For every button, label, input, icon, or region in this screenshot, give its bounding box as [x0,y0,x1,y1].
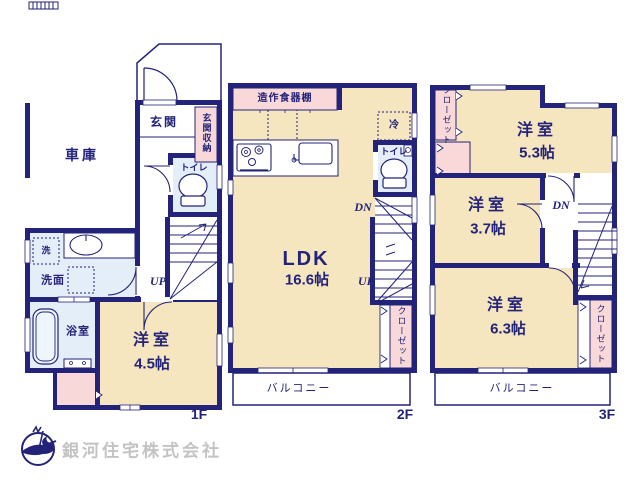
window [25,240,30,263]
garage-label: 車庫 [65,148,99,162]
toilet-door-arc [144,166,170,192]
window [470,85,506,90]
stairs-up-label-1f: UP [150,275,166,287]
bathtub-icon [33,309,58,364]
cupboard-label: 造作食器棚 [258,94,313,104]
toilet-label-1f: トイレ [180,164,207,173]
window [565,103,599,108]
floor-label-3f: 3F [599,407,615,421]
company-name: 銀河住宅株式会社 [62,437,222,462]
balcony-label-3f: バルコニー [490,384,555,395]
ldk-label: LDK [282,249,329,269]
refrigerator-label: 冷 [389,121,399,131]
floor2-plan [228,83,417,405]
window [228,180,233,195]
window [25,318,30,352]
entrance-porch [137,44,221,101]
bedroom2-label-3f: 洋室 [468,198,508,214]
garage-gate-icon [29,2,58,9]
floorplan-canvas [0,0,640,480]
closet-label-2f: クローゼット [397,306,406,366]
window [412,113,417,138]
bedroom-label-1f: 洋室 [133,333,173,349]
entrance-storage-label: 玄関収納 [202,113,211,153]
shower-counter-icon [64,359,91,368]
window [412,197,417,223]
window [430,285,435,315]
floor-label-1f: 1F [191,407,207,421]
window [217,165,222,189]
bedroom3-size-3f: 6.3帖 [490,322,526,337]
window [228,327,233,343]
window [430,195,435,225]
closet-bottom-label-3f: クローゼット [596,304,605,364]
balcony-label-2f: バルコニー [267,384,332,395]
window [612,228,617,254]
window [217,334,222,366]
stove-icon [237,144,271,171]
company-logo-bird-icon [21,427,56,465]
toilet-label-2f: トイレ [380,148,407,157]
ldk-size: 16.6帖 [285,273,329,288]
entrance-label: 玄関 [150,116,178,128]
stairs-down-label-3f: DN [552,199,569,211]
floor1-plan [25,2,222,410]
stairs-1f [170,217,217,300]
laundry-label: 洗 [41,247,50,256]
bedroom1-label-3f: 洋室 [517,123,557,139]
bedroom-size-1f: 4.5帖 [134,357,170,372]
window [228,263,233,283]
floorplan-page: 車庫 玄関 玄関収納 トイレ 洗 洗面 浴室 UP 洋室 4.5帖 1F 造作食… [0,0,640,480]
bedroom1-size-3f: 5.3帖 [519,146,555,161]
stairs-up-label-2f: UP [358,275,374,287]
toilet-icon-1f [179,174,207,206]
bedroom2-size-3f: 3.7帖 [470,222,506,237]
bedroom3-label-3f: 洋室 [487,298,527,314]
bathroom-label: 浴室 [66,327,90,338]
closet-top-label-3f: クローゼット [442,85,451,145]
window [612,136,617,162]
floor-label-2f: 2F [397,407,413,421]
stairs-down-label-2f: DN [354,201,371,213]
washroom-label: 洗面 [41,276,65,287]
kitchen-counter [233,140,338,176]
vanity-sink-icon [64,233,135,258]
